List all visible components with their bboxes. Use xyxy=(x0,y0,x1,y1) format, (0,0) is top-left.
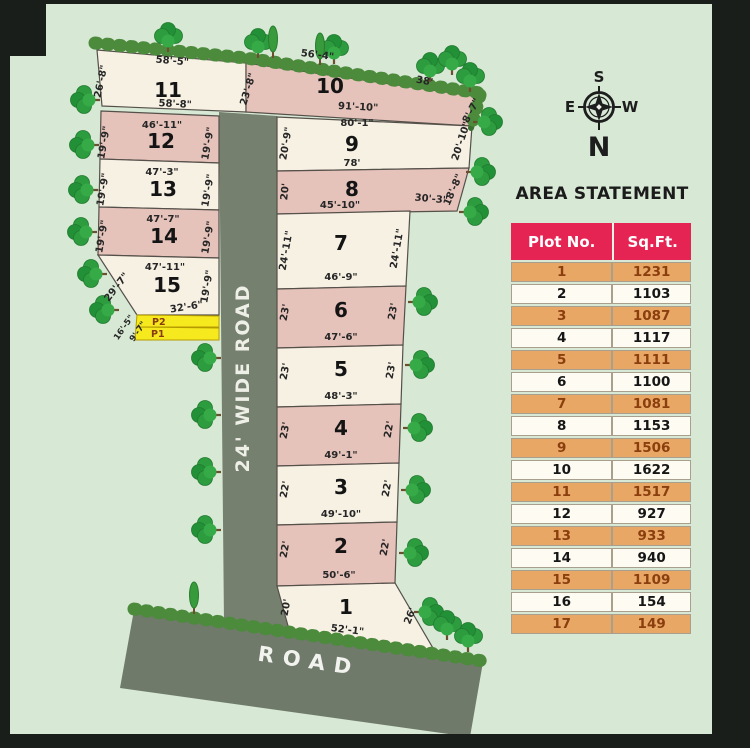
plot-5-bottom-dim: 48'-3" xyxy=(324,391,357,402)
table-row: 151109 xyxy=(511,570,691,590)
plot-no-cell: 6 xyxy=(511,372,612,392)
plot-no-cell: 7 xyxy=(511,394,612,414)
col-header-plot-no: Plot No. xyxy=(511,223,612,260)
plot-no-cell: 15 xyxy=(511,570,612,590)
plot-9-top-dim: 80'-1" xyxy=(340,118,373,129)
area-statement-table: Plot No. Sq.Ft. 11231 21103 31087 41117 … xyxy=(511,221,691,636)
plot-6-bottom-dim: 47'-6" xyxy=(324,332,357,343)
plot-8-shape xyxy=(277,168,469,214)
compass-east-label: E xyxy=(565,98,575,116)
compass-north-label: N xyxy=(588,132,611,163)
parking-p1-label: P1 xyxy=(151,329,165,340)
sqft-cell: 1100 xyxy=(612,372,691,392)
table-row: 16154 xyxy=(511,592,691,612)
table-row: 101622 xyxy=(511,460,691,480)
table-row: 51111 xyxy=(511,350,691,370)
plot-8-number: 8 xyxy=(345,177,359,201)
plot-15-number: 15 xyxy=(153,273,181,297)
plot-9-shape xyxy=(277,117,472,171)
plot-12-number: 12 xyxy=(147,129,175,153)
plot-no-cell: 12 xyxy=(511,504,612,524)
frame-bottom xyxy=(0,734,750,748)
plot-no-cell: 5 xyxy=(511,350,612,370)
sqft-cell: 1103 xyxy=(612,284,691,304)
sqft-cell: 1117 xyxy=(612,328,691,348)
plot-no-cell: 8 xyxy=(511,416,612,436)
plot-10-number: 10 xyxy=(316,74,344,98)
compass-west-label: W xyxy=(622,98,639,116)
sqft-cell: 1517 xyxy=(612,482,691,502)
sqft-cell: 1622 xyxy=(612,460,691,480)
sqft-cell: 933 xyxy=(612,526,691,546)
table-row: 11231 xyxy=(511,262,691,282)
sqft-cell: 927 xyxy=(612,504,691,524)
table-row: 111517 xyxy=(511,482,691,502)
table-row: 14940 xyxy=(511,548,691,568)
plot-no-cell: 2 xyxy=(511,284,612,304)
table-row: 71081 xyxy=(511,394,691,414)
plot-7-bottom-dim: 46'-9" xyxy=(324,272,357,283)
plot-9-number: 9 xyxy=(345,132,359,156)
sqft-cell: 154 xyxy=(612,592,691,612)
plot-no-cell: 14 xyxy=(511,548,612,568)
plot-2-number: 2 xyxy=(334,534,348,558)
frame-right xyxy=(712,0,750,748)
plot-no-cell: 9 xyxy=(511,438,612,458)
sqft-cell: 940 xyxy=(612,548,691,568)
plot-8-bottom-left-dim: 45'-10" xyxy=(320,200,360,211)
plot-14-number: 14 xyxy=(150,224,178,248)
plot-7-number: 7 xyxy=(334,231,348,255)
sqft-cell: 1111 xyxy=(612,350,691,370)
plot-10-bottom-dim: 91'-10" xyxy=(338,101,379,114)
frame-top-left xyxy=(0,0,46,56)
plot-11-bottom-dim: 58'-8" xyxy=(158,98,192,111)
sqft-cell: 1153 xyxy=(612,416,691,436)
sqft-cell: 1081 xyxy=(612,394,691,414)
sqft-cell: 1506 xyxy=(612,438,691,458)
plot-2-bottom-dim: 50'-6" xyxy=(322,570,355,581)
plot-no-cell: 10 xyxy=(511,460,612,480)
table-row: 31087 xyxy=(511,306,691,326)
table-row: 91506 xyxy=(511,438,691,458)
plot-3-bottom-dim: 49'-10" xyxy=(321,509,361,520)
plot-6-number: 6 xyxy=(334,298,348,322)
plot-no-cell: 17 xyxy=(511,614,612,634)
sqft-cell: 1231 xyxy=(612,262,691,282)
table-row: 21103 xyxy=(511,284,691,304)
plot-1-number: 1 xyxy=(339,595,353,619)
vertical-road-label: 24' WIDE ROAD xyxy=(232,283,254,472)
plot-no-cell: 11 xyxy=(511,482,612,502)
parking-p1-shape xyxy=(135,327,219,340)
plot-13-number: 13 xyxy=(149,177,177,201)
plot-8-left-dim: 20' xyxy=(279,183,292,201)
plot-5-number: 5 xyxy=(334,357,348,381)
sqft-cell: 149 xyxy=(612,614,691,634)
plot-3-number: 3 xyxy=(334,475,348,499)
table-row: 41117 xyxy=(511,328,691,348)
plot-no-cell: 16 xyxy=(511,592,612,612)
plot-4-number: 4 xyxy=(334,416,348,440)
col-header-sqft: Sq.Ft. xyxy=(612,223,691,260)
frame-left xyxy=(0,0,10,748)
plot-no-cell: 4 xyxy=(511,328,612,348)
plot-4-bottom-dim: 49'-1" xyxy=(324,450,357,461)
site-plan-page: 58'-5" 11 58'-8" 26'-8" 23'-8" 46'-11" 1… xyxy=(0,0,750,748)
table-row: 61100 xyxy=(511,372,691,392)
table-row: 81153 xyxy=(511,416,691,436)
sqft-cell: 1087 xyxy=(612,306,691,326)
plot-no-cell: 3 xyxy=(511,306,612,326)
table-header-row: Plot No. Sq.Ft. xyxy=(511,223,691,260)
table-row: 13933 xyxy=(511,526,691,546)
sqft-cell: 1109 xyxy=(612,570,691,590)
parking-p2-label: P2 xyxy=(152,317,166,328)
compass-south-label: S xyxy=(594,68,605,86)
table-row: 17149 xyxy=(511,614,691,634)
plot-9-bottom-dim: 78' xyxy=(344,158,361,169)
plot-15-top-dim: 47'-11" xyxy=(145,262,185,273)
plot-no-cell: 13 xyxy=(511,526,612,546)
parking-p2-shape xyxy=(136,315,219,327)
frame-top xyxy=(0,0,750,4)
area-statement-title: AREA STATEMENT xyxy=(511,184,693,204)
area-statement-panel: AREA STATEMENT Plot No. Sq.Ft. 11231 211… xyxy=(511,184,693,636)
plot-no-cell: 1 xyxy=(511,262,612,282)
table-row: 12927 xyxy=(511,504,691,524)
